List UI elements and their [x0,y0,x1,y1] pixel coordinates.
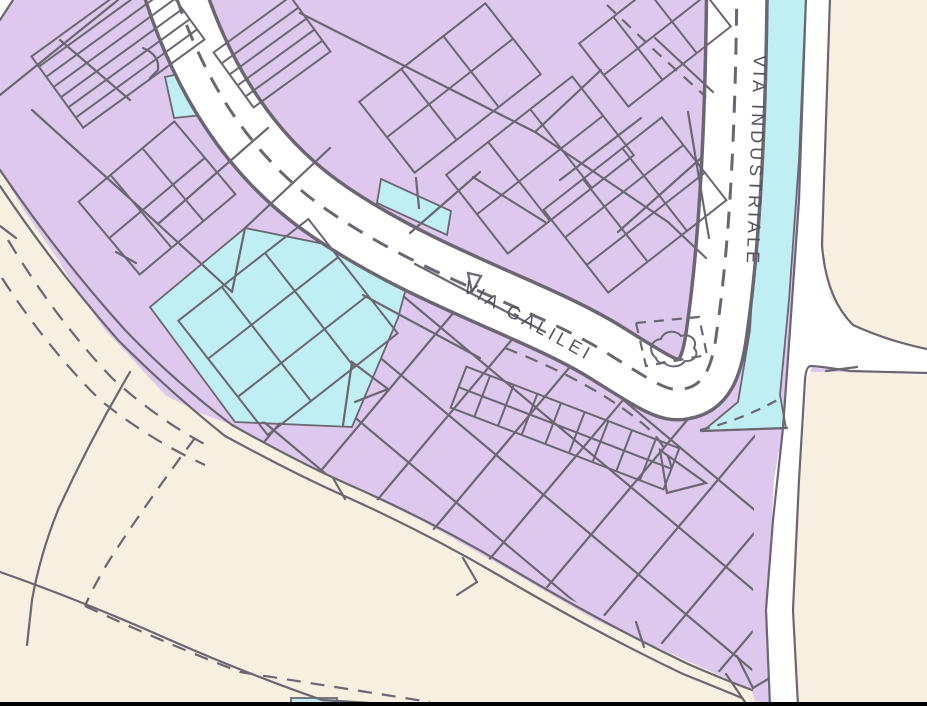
border-layer [0,702,927,706]
map-bottom-border [0,702,927,706]
zoning-map[interactable]: VIA GALILEIVIA INDUSTRIALE [0,0,927,706]
unzoned-area-northeast [822,0,927,349]
unzoned-area-southeast [791,372,927,706]
map-viewport[interactable]: VIA GALILEIVIA INDUSTRIALE [0,0,927,706]
